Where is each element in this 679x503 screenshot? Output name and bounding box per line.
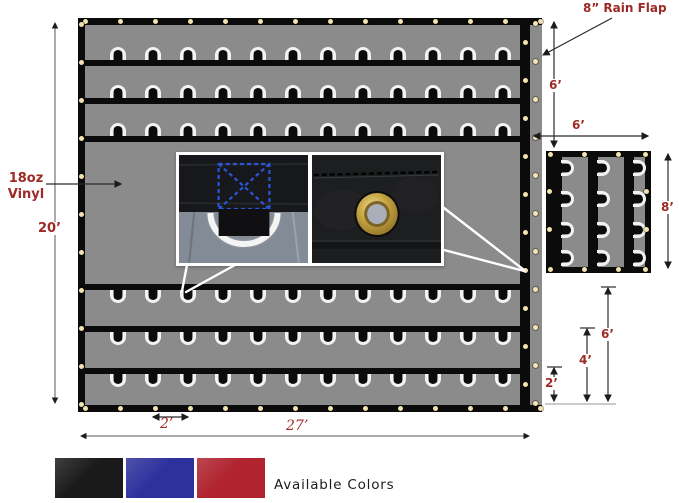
d-ring-arc [597, 160, 610, 176]
d-ring-arc [180, 332, 196, 345]
d-ring-arc [561, 250, 574, 266]
d-ring [390, 47, 406, 60]
d-ring [425, 332, 441, 345]
grommet-dot [523, 40, 528, 45]
d-ring [320, 47, 336, 60]
grommet-dot [118, 406, 123, 411]
panel-width-dimension-label: 6’ [572, 119, 585, 132]
grommet-dot [523, 192, 528, 197]
d-ring-arc [355, 374, 371, 387]
strap [85, 98, 520, 104]
d-ring-arc [285, 374, 301, 387]
offset-2ft-label: 2’ [543, 377, 560, 390]
d-ring [561, 250, 574, 266]
d-ring [355, 85, 371, 98]
grommet-dot [547, 189, 552, 194]
d-ring-arc [355, 123, 371, 136]
grommet-dot [468, 406, 473, 411]
d-ring [285, 374, 301, 387]
d-ring-arc [110, 374, 126, 387]
d-ring [460, 290, 476, 303]
grommet-dot [363, 19, 368, 24]
grommet-dot [83, 406, 88, 411]
d-ring [495, 123, 511, 136]
grommet-dot [258, 19, 263, 24]
d-ring [145, 123, 161, 136]
d-ring-arc [250, 374, 266, 387]
d-ring [250, 47, 266, 60]
grommet-dot [79, 136, 84, 141]
d-ring [320, 123, 336, 136]
width-dimension-label: 27’ [284, 420, 310, 433]
d-ring [110, 47, 126, 60]
d-ring [180, 374, 196, 387]
d-ring [215, 123, 231, 136]
detail-insets [176, 152, 444, 266]
d-ring [495, 47, 511, 60]
d-ring-arc [495, 47, 511, 60]
grommet-dot [433, 19, 438, 24]
grommet-dot [523, 78, 528, 83]
grommet-dot [223, 19, 228, 24]
d-ring [460, 85, 476, 98]
d-ring-arc [390, 123, 406, 136]
d-ring [180, 47, 196, 60]
d-ring-arc [180, 47, 196, 60]
color-swatch-black [55, 458, 123, 498]
d-ring [495, 290, 511, 303]
d-ring [180, 332, 196, 345]
grommet-dot [468, 19, 473, 24]
d-ring-arc [355, 47, 371, 60]
d-ring-arc [425, 123, 441, 136]
grommet-dot [616, 152, 621, 157]
brass-grommet [354, 191, 399, 237]
d-ring [633, 250, 646, 266]
d-ring [250, 374, 266, 387]
grommet-dot [533, 97, 538, 102]
available-color-swatches [55, 458, 265, 498]
d-ring [390, 85, 406, 98]
grommet-dot [153, 19, 158, 24]
d-ring-arc [110, 85, 126, 98]
d-ring-arc [320, 374, 336, 387]
grommet-dot [79, 22, 84, 27]
d-ring [425, 47, 441, 60]
ring-spacing-label: 2’ [160, 418, 173, 431]
d-ring [597, 191, 610, 207]
d-ring [390, 290, 406, 303]
d-ring-arc [633, 250, 646, 266]
d-ring [285, 290, 301, 303]
d-ring [460, 123, 476, 136]
grommet-dot [503, 19, 508, 24]
grommet-dot [79, 364, 84, 369]
d-ring-arc [320, 47, 336, 60]
d-ring [633, 160, 646, 176]
d-ring [597, 160, 610, 176]
d-ring-arc [215, 374, 231, 387]
grommet-dot [223, 406, 228, 411]
grommet-dot [79, 174, 84, 179]
d-ring [561, 160, 574, 176]
grommet-dot [188, 19, 193, 24]
grommet-dot [533, 173, 538, 178]
grommet-dot [293, 19, 298, 24]
offset-4ft-label: 4’ [577, 354, 594, 367]
d-ring-arc [215, 290, 231, 303]
d-ring [355, 47, 371, 60]
d-ring-arc [597, 222, 610, 238]
rain-flap-label: 8” Rain Flap [583, 2, 667, 15]
d-ring-arc [561, 160, 574, 176]
d-ring-arc [285, 332, 301, 345]
d-ring-arc [285, 85, 301, 98]
grommet-dot [533, 249, 538, 254]
d-ring [145, 47, 161, 60]
d-ring [425, 123, 441, 136]
grommet-dot [153, 406, 158, 411]
d-ring [390, 332, 406, 345]
d-ring [561, 222, 574, 238]
d-ring [180, 123, 196, 136]
d-ring-arc [425, 332, 441, 345]
d-ring [390, 123, 406, 136]
grommet-dot [644, 189, 649, 194]
grommet-dot [79, 212, 84, 217]
grommet-dot [533, 287, 538, 292]
grommet-dot [643, 267, 648, 272]
d-ring [425, 290, 441, 303]
d-ring [215, 85, 231, 98]
d-ring [180, 85, 196, 98]
d-ring [110, 85, 126, 98]
grommet-dot [582, 267, 587, 272]
d-ring-arc [320, 290, 336, 303]
grommet-dot [643, 152, 648, 157]
d-ring [145, 85, 161, 98]
d-ring [285, 85, 301, 98]
d-ring-arc [180, 85, 196, 98]
d-ring-arc [495, 332, 511, 345]
d-ring-arc [110, 47, 126, 60]
d-ring-arc [320, 85, 336, 98]
d-ring-arc [250, 85, 266, 98]
d-ring [250, 123, 266, 136]
grommet-dot [118, 19, 123, 24]
grommet-dot [328, 406, 333, 411]
d-ring-arc [390, 332, 406, 345]
d-ring [355, 332, 371, 345]
grommet-dot [533, 325, 538, 330]
d-ring [320, 85, 336, 98]
d-ring-arc [460, 85, 476, 98]
d-ring-arc [425, 47, 441, 60]
color-swatch-red [197, 458, 265, 498]
d-ring [285, 123, 301, 136]
grommet-dot [582, 152, 587, 157]
height-dimension-label: 20’ [36, 222, 63, 235]
d-ring [460, 374, 476, 387]
d-ring [320, 332, 336, 345]
d-ring-arc [250, 332, 266, 345]
grommet-dot [533, 59, 538, 64]
d-ring-arc [425, 374, 441, 387]
d-ring-arc [495, 374, 511, 387]
d-ring [597, 250, 610, 266]
grommet-dot [79, 402, 84, 407]
grommet-dot [533, 401, 538, 406]
d-ring-arc [390, 47, 406, 60]
grommet-dot [548, 152, 553, 157]
grommet-dot [523, 306, 528, 311]
d-ring-arc [460, 47, 476, 60]
d-ring-photo-art [179, 155, 308, 263]
strap [85, 60, 520, 66]
material-label-line1: 18oz [6, 171, 46, 187]
d-ring [425, 85, 441, 98]
d-ring [250, 332, 266, 345]
grommet-dot [503, 406, 508, 411]
available-colors-label: Available Colors [274, 477, 394, 493]
d-ring-arc [215, 85, 231, 98]
grommet-dot [538, 19, 543, 24]
d-ring-arc [460, 332, 476, 345]
grommet-dot [363, 406, 368, 411]
d-ring-arc [145, 290, 161, 303]
d-ring [561, 191, 574, 207]
d-ring-detail-photo [179, 155, 308, 263]
d-ring [145, 332, 161, 345]
d-ring [250, 85, 266, 98]
d-ring-arc [597, 250, 610, 266]
color-swatch-blue [126, 458, 194, 498]
d-ring-arc [285, 47, 301, 60]
d-ring [460, 47, 476, 60]
d-ring-arc [355, 85, 371, 98]
strap [85, 136, 520, 142]
d-ring [180, 290, 196, 303]
grommet-dot [188, 406, 193, 411]
grommet-dot [79, 250, 84, 255]
material-label: 18oz Vinyl [6, 171, 46, 203]
d-ring [390, 374, 406, 387]
d-ring-arc [145, 374, 161, 387]
rain-flap-pointer-arrow [543, 18, 612, 55]
grommet-dot [616, 267, 621, 272]
side-panel [546, 151, 651, 273]
d-ring-arc [180, 123, 196, 136]
d-ring-arc [597, 191, 610, 207]
grommet-dot [398, 406, 403, 411]
d-ring-arc [425, 85, 441, 98]
d-ring [460, 332, 476, 345]
d-ring-arc [390, 290, 406, 303]
d-ring-arc [285, 290, 301, 303]
d-ring-arc [460, 123, 476, 136]
d-ring-arc [110, 290, 126, 303]
d-ring-arc [320, 332, 336, 345]
d-ring-arc [355, 332, 371, 345]
d-ring [215, 290, 231, 303]
grommet-dot [79, 98, 84, 103]
d-ring [285, 47, 301, 60]
grommet-dot [79, 60, 84, 65]
d-ring [320, 290, 336, 303]
grommet-dot [433, 406, 438, 411]
d-ring [495, 85, 511, 98]
d-ring [285, 332, 301, 345]
d-ring [215, 47, 231, 60]
d-ring [145, 374, 161, 387]
d-ring-arc [390, 374, 406, 387]
d-ring-arc [320, 123, 336, 136]
grommet-dot [328, 19, 333, 24]
grommet-dot [293, 406, 298, 411]
d-ring [110, 290, 126, 303]
grommet-dot [79, 326, 84, 331]
webbing-tab [219, 209, 270, 236]
grommet-dot [523, 116, 528, 121]
grommet-dot [538, 406, 543, 411]
d-ring [215, 332, 231, 345]
d-ring-arc [390, 85, 406, 98]
grommet-dot [533, 211, 538, 216]
d-ring [320, 374, 336, 387]
d-ring-arc [145, 85, 161, 98]
grommet-dot [523, 382, 528, 387]
top-gap-dimension-label: 6’ [547, 79, 564, 92]
d-ring [110, 332, 126, 345]
d-ring-arc [110, 123, 126, 136]
grommet-photo-art [312, 155, 441, 263]
d-ring [355, 123, 371, 136]
d-ring-arc [145, 332, 161, 345]
d-ring-arc [425, 290, 441, 303]
d-ring-arc [180, 374, 196, 387]
grommet-dot [533, 21, 538, 26]
grommet-dot [258, 406, 263, 411]
d-ring-arc [561, 222, 574, 238]
d-ring-arc [460, 290, 476, 303]
d-ring-arc [215, 47, 231, 60]
tarp-spec-diagram: 18oz Vinyl 8” Rain Flap 20’ 27’ 2’ 6’ 6’… [0, 0, 679, 503]
d-ring [495, 332, 511, 345]
d-ring-arc [633, 160, 646, 176]
d-ring-arc [285, 123, 301, 136]
d-ring-arc [355, 290, 371, 303]
d-ring-arc [110, 332, 126, 345]
grommet-dot [523, 230, 528, 235]
d-ring-arc [250, 47, 266, 60]
d-ring-arc [250, 290, 266, 303]
grommet-dot [547, 227, 552, 232]
grommet-dot [533, 363, 538, 368]
grommet-dot [523, 154, 528, 159]
d-ring-arc [561, 191, 574, 207]
grommet-dot [533, 135, 538, 140]
panel-height-dimension-label: 8’ [659, 201, 676, 214]
material-label-line2: Vinyl [6, 187, 46, 203]
d-ring [110, 374, 126, 387]
grommet-dot [523, 344, 528, 349]
d-ring [250, 290, 266, 303]
grommet-dot [398, 19, 403, 24]
d-ring [145, 290, 161, 303]
d-ring [597, 222, 610, 238]
d-ring [355, 374, 371, 387]
d-ring [425, 374, 441, 387]
d-ring-arc [145, 47, 161, 60]
grommet-dot [523, 268, 528, 273]
d-ring-arc [495, 290, 511, 303]
d-ring [495, 374, 511, 387]
d-ring-arc [215, 123, 231, 136]
d-ring [355, 290, 371, 303]
d-ring [215, 374, 231, 387]
d-ring-arc [145, 123, 161, 136]
d-ring-arc [460, 374, 476, 387]
d-ring [110, 123, 126, 136]
d-ring-arc [180, 290, 196, 303]
d-ring-arc [250, 123, 266, 136]
grommet-detail-photo [312, 155, 441, 263]
d-ring-arc [215, 332, 231, 345]
offset-6ft-label: 6’ [599, 328, 616, 341]
d-ring-arc [495, 123, 511, 136]
d-ring-arc [495, 85, 511, 98]
grommet-dot [644, 227, 649, 232]
grommet-dot [79, 288, 84, 293]
grommet-dot [548, 267, 553, 272]
